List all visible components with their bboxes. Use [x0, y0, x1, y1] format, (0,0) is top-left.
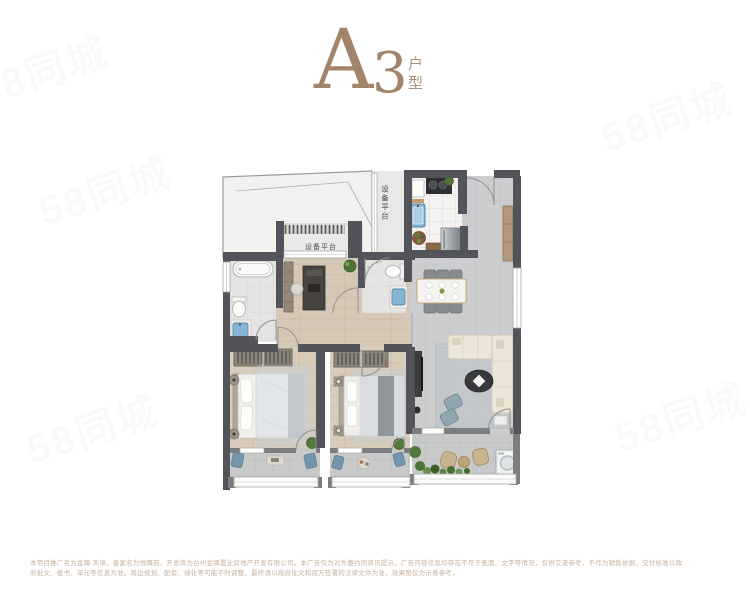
window: [284, 251, 346, 258]
balcony-window-sill: [414, 474, 516, 484]
kitchen-mat: [412, 199, 424, 203]
bed: [339, 376, 404, 436]
window: [338, 448, 362, 453]
dining-set: [417, 270, 466, 313]
balcony-window-sill: [234, 477, 318, 487]
toilet: [232, 297, 246, 317]
plant: [394, 439, 405, 450]
floorplan-page: { "header": { "letter": "A", "number": "…: [0, 0, 750, 600]
kitchen-sink: [411, 204, 425, 227]
bed: [233, 374, 304, 438]
stove: [426, 177, 454, 195]
entry-shoe-cabinet: [503, 206, 513, 261]
window: [513, 268, 521, 328]
balcony-window-sill: [332, 477, 410, 487]
tv-console: [414, 351, 422, 397]
disclaimer-line-1: 本项目推广名为金隅·天境，备案名为悦隅苑，开发商为台州金隅置业房地产开发有限公司…: [30, 559, 722, 569]
tv-screen: [421, 357, 423, 391]
bathtub: [233, 261, 273, 277]
window: [240, 448, 264, 453]
window: [422, 428, 444, 434]
disclaimer-line-2: 府批文、楼书、单元等信息为准。周边规划、配套、绿化等可能不时调整，最终请以政府批…: [30, 569, 722, 579]
kitchen-bench: [426, 243, 441, 250]
balcony-table: [459, 457, 470, 468]
coffee-table: [465, 370, 493, 392]
side-table: [494, 416, 507, 425]
toilet: [386, 264, 407, 279]
kitchen-cabinet: [412, 180, 424, 197]
vegetable-basket: [413, 232, 426, 245]
floorplan-drawing: [0, 0, 750, 600]
plant: [344, 260, 356, 272]
balcony-chair: [304, 453, 318, 469]
bathroom-sink: [390, 286, 407, 308]
stage: 58同城 58同城 58同城 58同城 58同城 A 3 户型: [0, 0, 750, 600]
window: [223, 262, 230, 292]
balcony-chair: [231, 452, 245, 468]
wardrobe: [334, 351, 388, 367]
label-equipment-platform-horizontal: 设备平台: [294, 242, 348, 252]
desk: [303, 266, 325, 310]
label-equipment-platform-vertical: 设备平台: [381, 185, 389, 221]
